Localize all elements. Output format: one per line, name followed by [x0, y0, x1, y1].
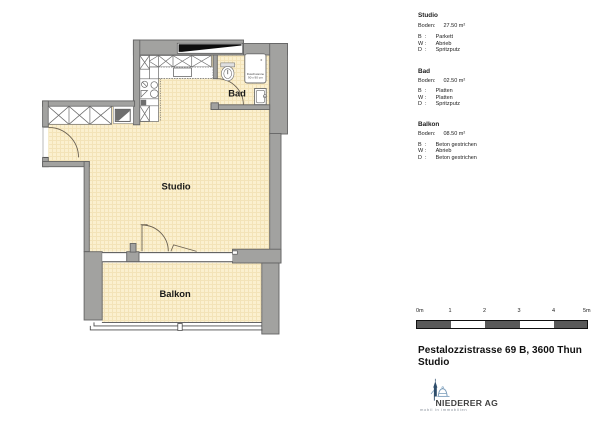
svg-text:Bad: Bad	[228, 87, 246, 98]
svg-text:Studio: Studio	[162, 180, 191, 191]
svg-text:Balkon: Balkon	[160, 288, 192, 299]
svg-text:90 x 90 cm: 90 x 90 cm	[248, 75, 263, 79]
